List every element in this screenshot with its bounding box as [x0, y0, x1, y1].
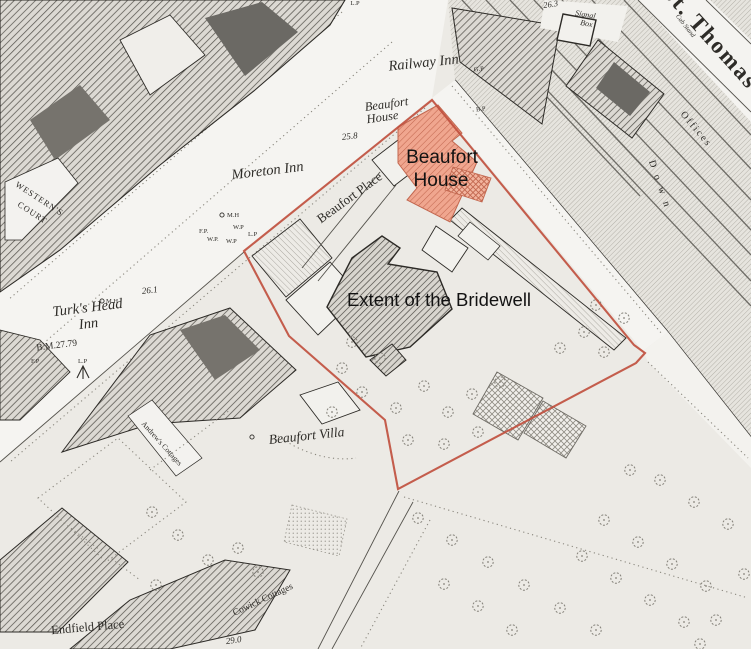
ordnance-survey-map: St. Thomas Cab Stand 26.3 Signal Box L.P…: [0, 0, 751, 649]
label-lp-1: L.P: [248, 231, 258, 238]
label-wp-1: W.P: [233, 224, 244, 231]
label-fp-1: F.P.: [199, 228, 209, 235]
label-mh-1: M.H: [227, 212, 239, 219]
annotation-beaufort-house-1: Beaufort: [406, 147, 479, 168]
label-turks-head-2: Inn: [77, 315, 99, 333]
annotation-beaufort-house-2: House: [414, 170, 469, 191]
label-gp: G.P: [474, 65, 485, 73]
label-lp-2: L.P: [78, 358, 88, 365]
map-canvas: St. Thomas Cab Stand 26.3 Signal Box L.P…: [0, 0, 751, 649]
label-spot-261: 26.1: [141, 284, 158, 296]
label-fp-2: F.P: [31, 358, 40, 365]
label-bp: B.P: [476, 105, 487, 113]
annotation-extent: Extent of the Bridewell: [347, 289, 531, 310]
label-mh-2: M.H: [106, 298, 118, 305]
label-lp-top: L.P: [350, 0, 360, 7]
label-spot-258: 25.8: [341, 130, 358, 142]
label-wp-3: W.P: [226, 238, 237, 245]
label-wp-2: W.P.: [207, 236, 219, 243]
